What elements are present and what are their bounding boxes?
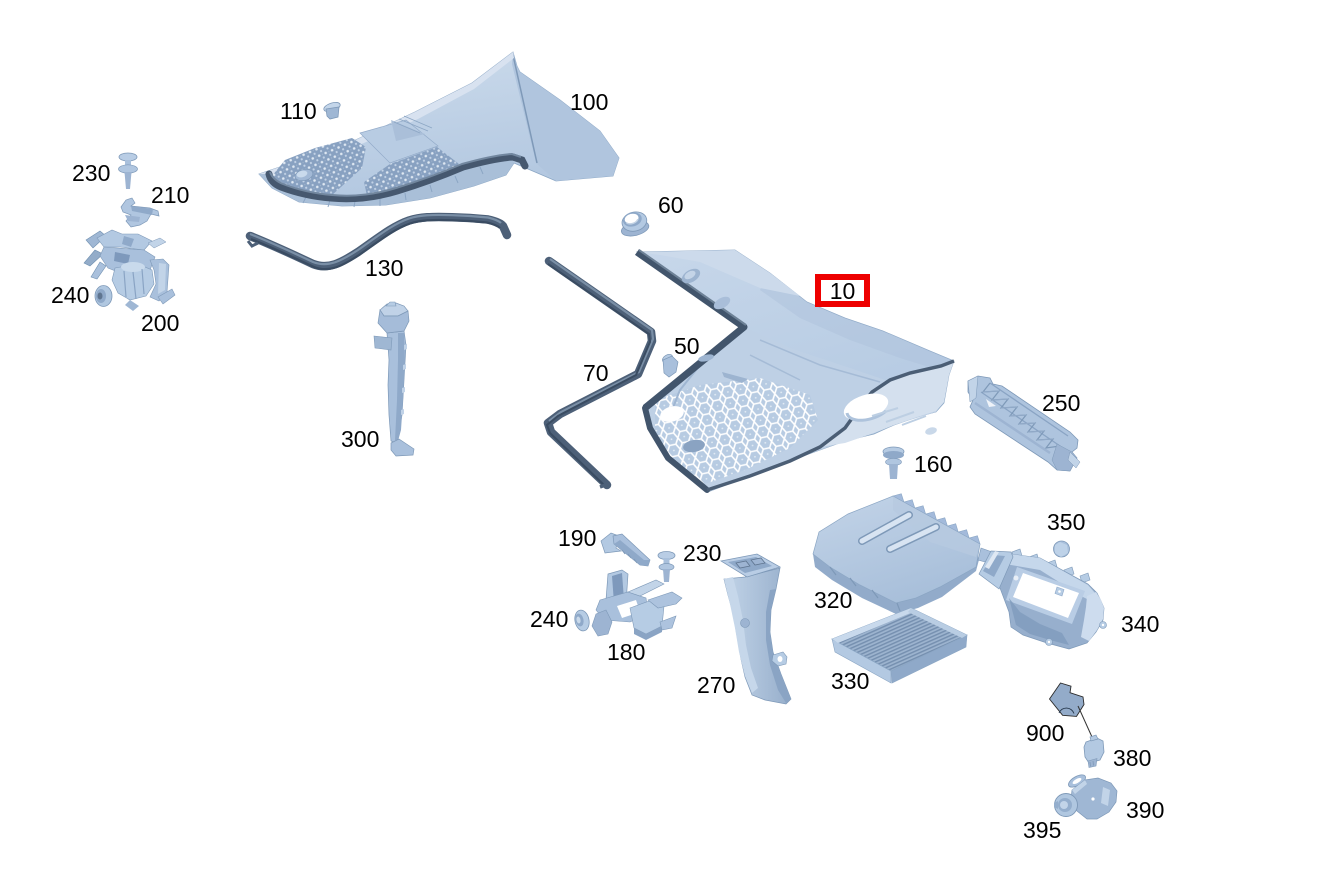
svg-text:240: 240 — [530, 606, 568, 632]
svg-text:340: 340 — [1121, 611, 1159, 637]
svg-text:130: 130 — [365, 255, 403, 281]
svg-text:200: 200 — [141, 310, 179, 336]
svg-text:190: 190 — [558, 525, 596, 551]
svg-text:100: 100 — [570, 89, 608, 115]
svg-text:900: 900 — [1026, 720, 1064, 746]
svg-text:300: 300 — [341, 426, 379, 452]
svg-text:230: 230 — [683, 540, 721, 566]
svg-text:390: 390 — [1126, 797, 1164, 823]
svg-text:180: 180 — [607, 639, 645, 665]
svg-text:330: 330 — [831, 668, 869, 694]
svg-text:395: 395 — [1023, 817, 1061, 843]
svg-text:240: 240 — [51, 282, 89, 308]
svg-text:270: 270 — [697, 672, 735, 698]
svg-text:70: 70 — [583, 360, 609, 386]
svg-text:60: 60 — [658, 192, 684, 218]
svg-text:320: 320 — [814, 587, 852, 613]
svg-text:160: 160 — [914, 451, 952, 477]
svg-text:110: 110 — [280, 98, 317, 124]
svg-text:210: 210 — [151, 182, 189, 208]
svg-text:10: 10 — [830, 278, 856, 304]
svg-text:380: 380 — [1113, 745, 1151, 771]
svg-text:250: 250 — [1042, 390, 1080, 416]
svg-text:230: 230 — [72, 160, 110, 186]
svg-text:350: 350 — [1047, 509, 1085, 535]
svg-text:50: 50 — [674, 333, 700, 359]
